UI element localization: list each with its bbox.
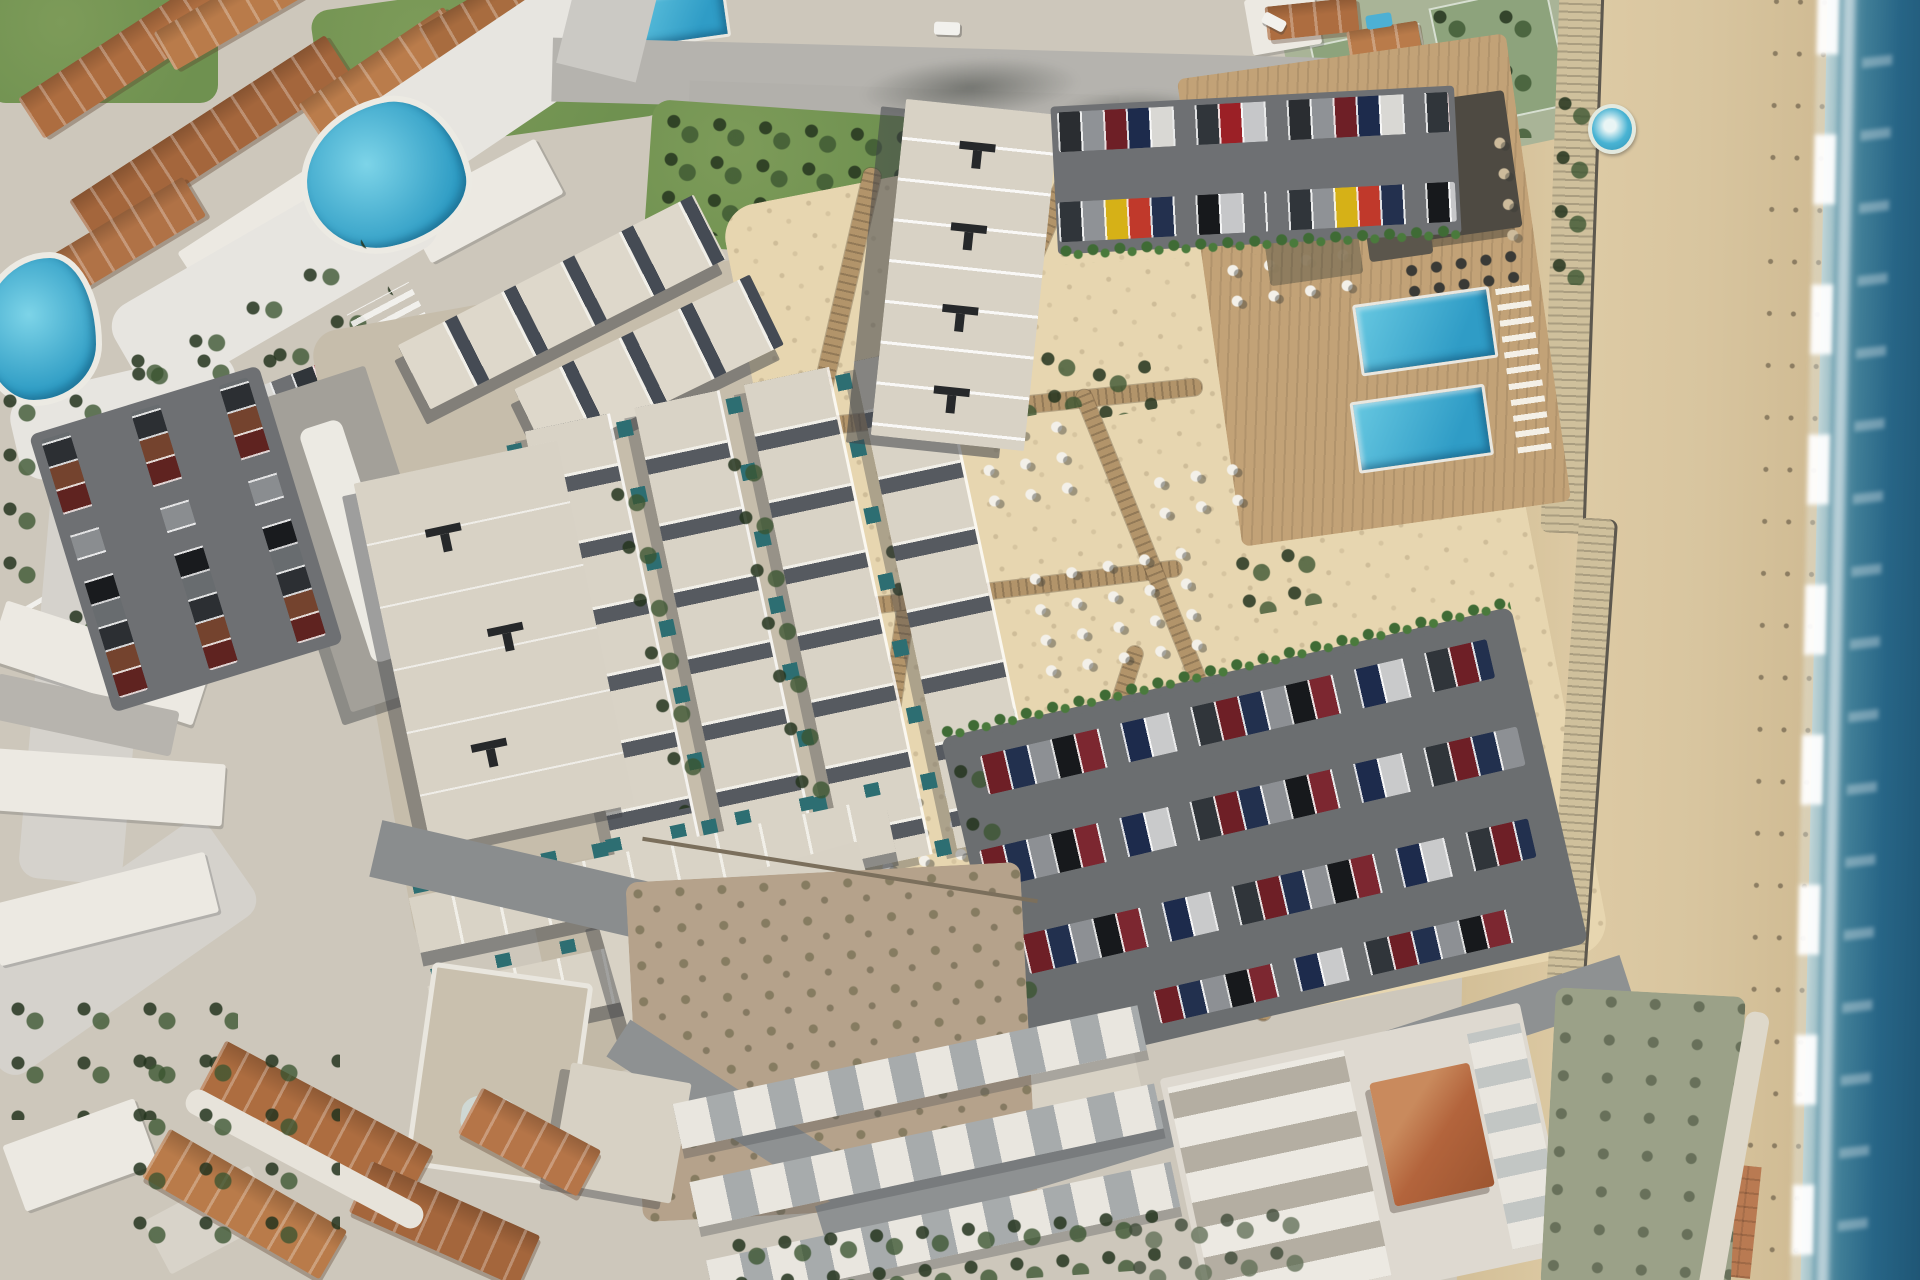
roof-vent-icon (471, 738, 512, 771)
car-on-road (934, 22, 960, 36)
sun-loungers (1495, 280, 1552, 453)
aerial-resort-rendering (0, 0, 1920, 1280)
spa-pool (1588, 104, 1636, 154)
roof-vent-icon (957, 141, 996, 171)
main-pool (1352, 286, 1499, 377)
main-pool (1349, 384, 1494, 474)
terracotta-hip-roof (1369, 1062, 1495, 1206)
sea (1800, 0, 1920, 1280)
roof-vent-icon (487, 622, 528, 655)
village-trees (130, 1052, 340, 1262)
parked-car-row (131, 404, 239, 671)
garden-shrubs (1088, 357, 1158, 419)
parking-lot-north (1050, 86, 1461, 255)
roof-vent-icon (949, 222, 988, 252)
roof-vent-icon (932, 385, 971, 415)
roof-vent-icon (940, 304, 979, 334)
roof-vent-icon (425, 522, 466, 555)
